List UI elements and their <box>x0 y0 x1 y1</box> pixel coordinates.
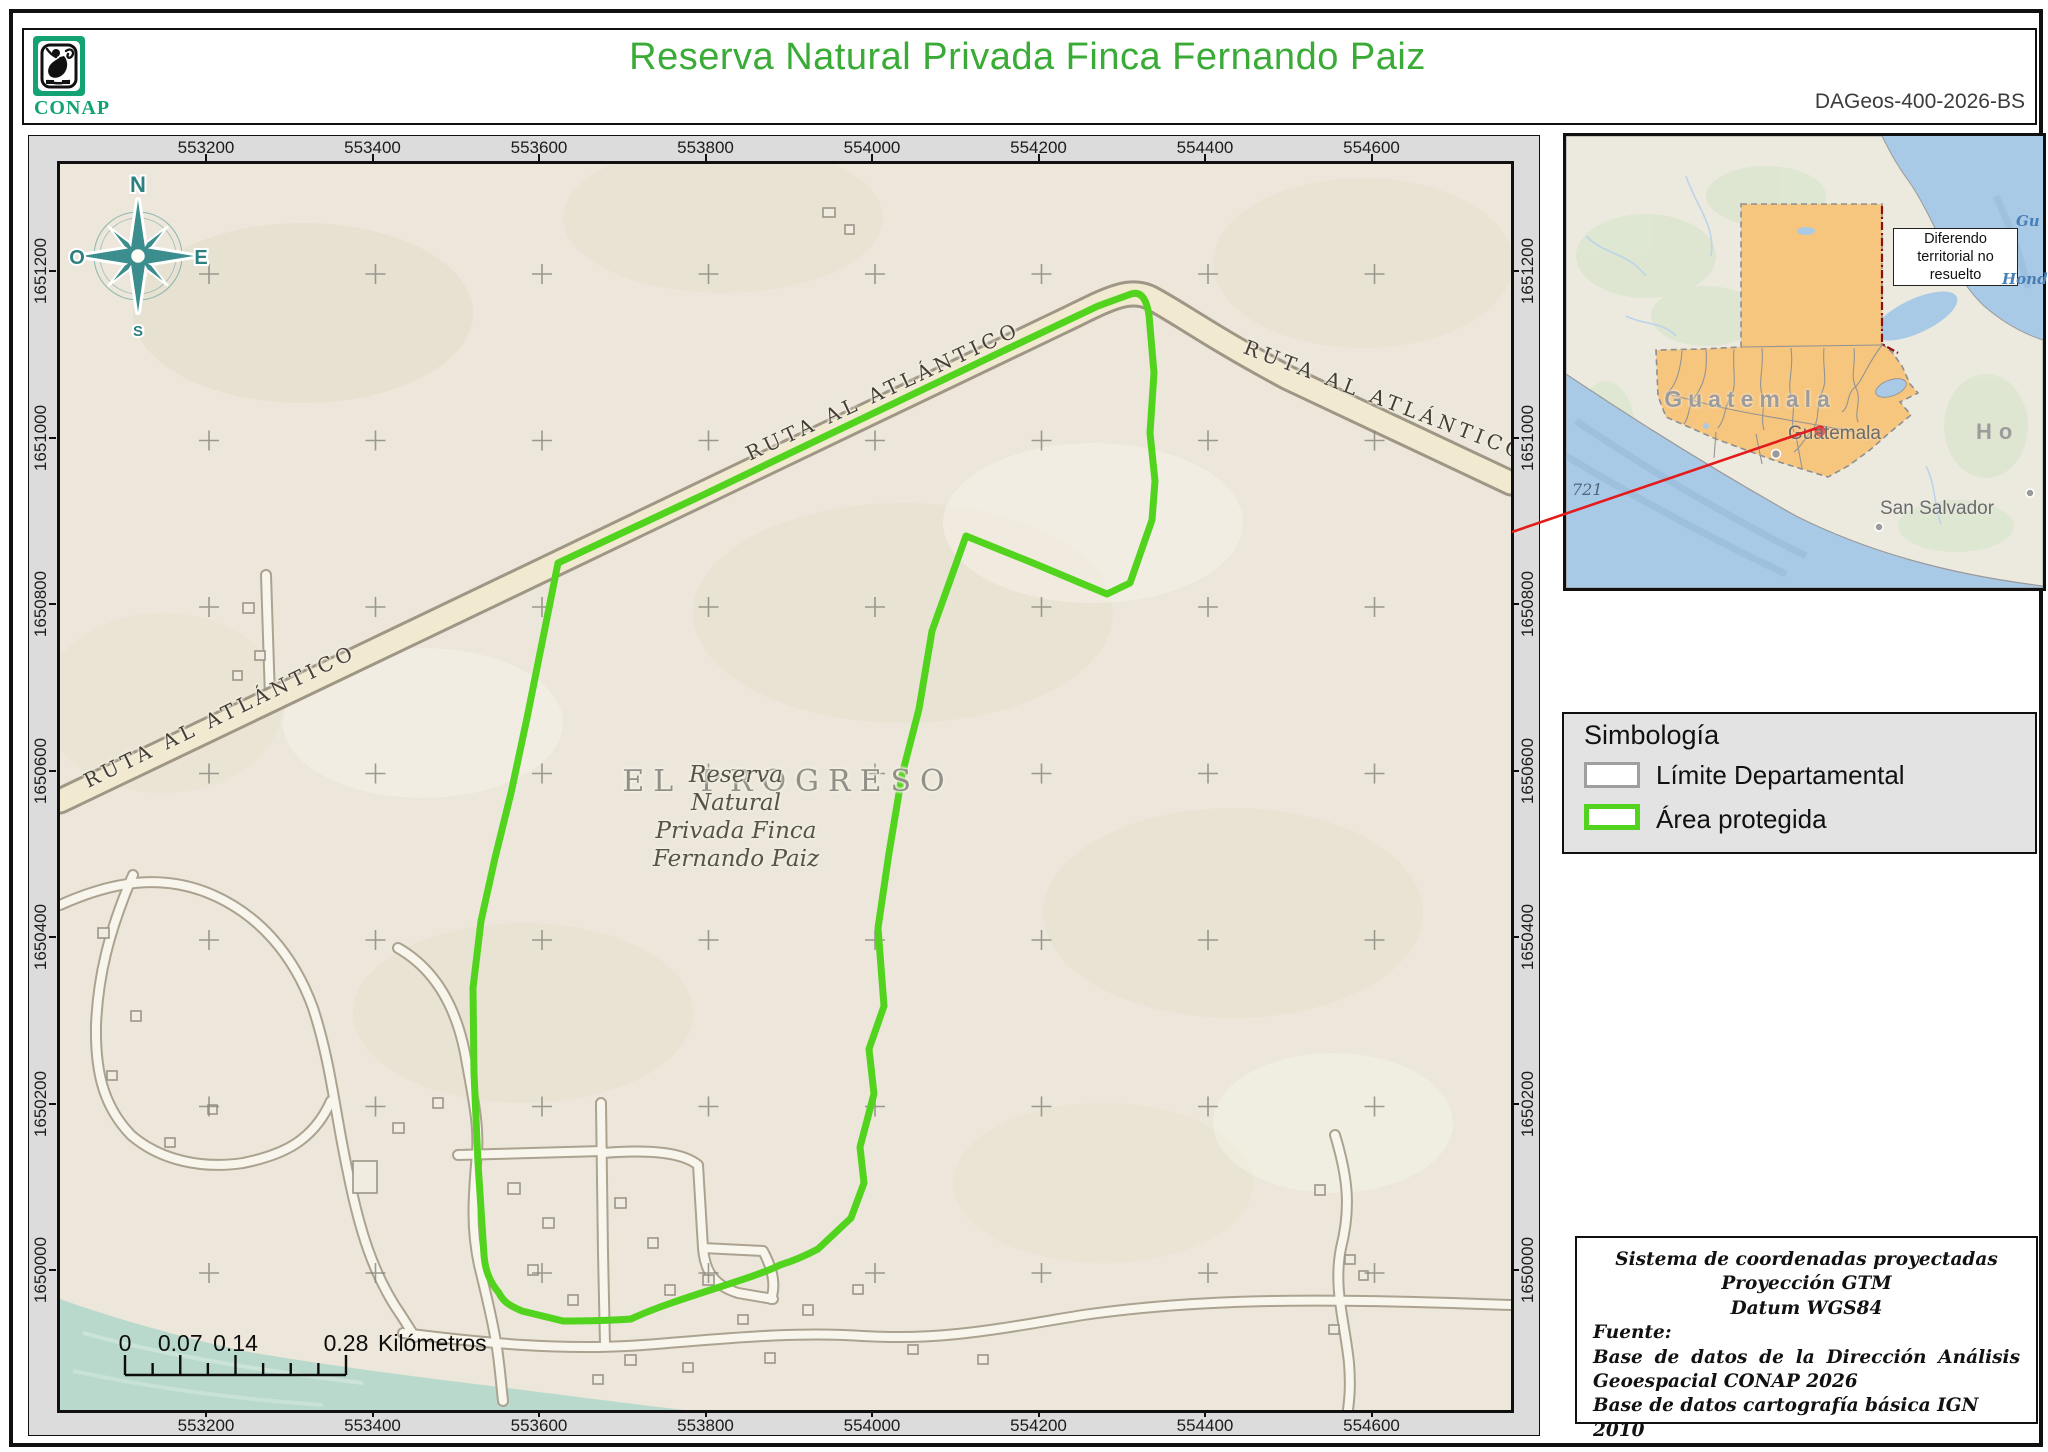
axis-label <box>49 770 56 772</box>
axis-top: 5532005534005536005538005540005542005544… <box>28 136 1538 161</box>
axis-label <box>49 270 56 272</box>
axis-label <box>49 936 56 938</box>
axis-label: 553200 <box>161 1416 251 1436</box>
scale-tick-label: 0 <box>119 1330 132 1357</box>
axis-label <box>705 154 707 161</box>
axis-label: 1651000 <box>31 393 51 483</box>
territorial-note: Diferendo territorial no resuelto <box>1893 228 2018 286</box>
city-dot <box>2026 489 2034 497</box>
axis-label <box>538 154 540 161</box>
axis-label: 1650600 <box>31 726 51 816</box>
guatemala-city-dot <box>1772 450 1781 459</box>
credits-box: Sistema de coordenadas proyectadas Proye… <box>1575 1236 2038 1424</box>
compass-w: O <box>69 247 85 269</box>
compass-e: E <box>194 247 207 269</box>
compass-rose-icon: N O E S <box>66 164 216 344</box>
country-label: Guatemala <box>1650 386 1850 413</box>
axis-label: 554400 <box>1160 1416 1250 1436</box>
axis-label <box>1038 154 1040 161</box>
credits-projection: Proyección GTM <box>1593 1272 2020 1296</box>
credits-source-1: Base de datos de la Dirección Análisis G… <box>1593 1346 2020 1395</box>
capital-city-label: Guatemala <box>1788 423 1908 445</box>
axis-label: 1650800 <box>31 559 51 649</box>
axis-label: 553800 <box>661 1416 751 1436</box>
axis-label <box>1204 154 1206 161</box>
axis-left: 1651200165100016508001650600165040016502… <box>29 135 56 1434</box>
scale-tick-label: 0.07 <box>158 1330 203 1357</box>
lake-peten <box>1797 227 1815 235</box>
conap-logo <box>33 36 85 98</box>
axis-label: 1650200 <box>1518 1059 1538 1149</box>
honduras-label: Ho <box>1976 419 2019 445</box>
credits-fuente: Fuente: <box>1593 1321 2020 1345</box>
map-canvas: N O E S EL PROGRESO Reserva Natural Priv… <box>57 161 1514 1413</box>
axis-right: 1651200165100016508001650600165040016502… <box>1512 135 1540 1434</box>
limite-swatch <box>1584 762 1640 788</box>
legend-title: Simbología <box>1584 720 1719 751</box>
compass-s: S <box>133 323 143 340</box>
axis-label: 1650800 <box>1518 559 1538 649</box>
credits-datum: Datum WGS84 <box>1593 1297 2020 1321</box>
reserve-name-label: Reserva Natural Privada Finca Fernando P… <box>622 761 850 873</box>
axis-label: 1651000 <box>1518 393 1538 483</box>
conap-wordmark: CONAP <box>26 97 118 120</box>
depth-label: 721 <box>1572 480 1603 499</box>
san-salvador-label: San Salvador <box>1880 498 2020 520</box>
san-salvador-dot <box>1875 523 1883 531</box>
axis-label: 1650400 <box>1518 892 1538 982</box>
axis-label <box>205 154 207 161</box>
axis-label <box>871 154 873 161</box>
axis-label <box>49 437 56 439</box>
axis-label: 554000 <box>827 1416 917 1436</box>
axis-label: 1650600 <box>1518 726 1538 816</box>
axis-label <box>49 1269 56 1271</box>
axis-label: 1650000 <box>1518 1225 1538 1315</box>
axis-label: 554200 <box>994 1416 1084 1436</box>
axis-label: 554600 <box>1327 1416 1417 1436</box>
scale-tick-label: 0.14 <box>213 1330 258 1357</box>
ocean-label-gu: Gu <box>2016 212 2040 230</box>
ocean-label-hond: Hond <box>2002 270 2048 288</box>
axis-label <box>49 1103 56 1105</box>
legend-item-label: Límite Departamental <box>1656 760 1905 791</box>
sheet-code: DAGeos-400-2026-BS <box>1640 90 2025 114</box>
axis-label: 1650000 <box>31 1225 51 1315</box>
axis-label <box>1371 154 1373 161</box>
axis-label <box>49 603 56 605</box>
scale-unit-label: Kilómetros <box>378 1330 487 1357</box>
axis-bottom: 5532005534005536005538005540005542005544… <box>28 1410 1538 1436</box>
legend: Simbología Límite Departamental Área pro… <box>1562 712 2037 854</box>
legend-item-label: Área protegida <box>1656 804 1827 835</box>
lake-atitlan <box>1703 423 1709 429</box>
inset-graphics <box>1566 136 2043 588</box>
axis-label: 1650400 <box>31 892 51 982</box>
area-protegida-swatch <box>1584 804 1640 830</box>
axis-label: 1651200 <box>31 226 51 316</box>
axis-label <box>372 154 374 161</box>
page-title: Reserva Natural Privada Finca Fernando P… <box>380 36 1675 79</box>
inset-map: Diferendo territorial no resuelto Guatem… <box>1563 133 2046 591</box>
axis-label: 1651200 <box>1518 226 1538 316</box>
compass-n: N <box>130 172 146 197</box>
axis-label: 553400 <box>328 1416 418 1436</box>
credits-coord-system: Sistema de coordenadas proyectadas <box>1593 1248 2020 1272</box>
axis-label: 1650200 <box>31 1059 51 1149</box>
monkey-icon <box>33 36 85 98</box>
axis-label: 553600 <box>494 1416 584 1436</box>
credits-source-2: Base de datos cartografía básica IGN 201… <box>1593 1394 2020 1443</box>
scale-tick-label: 0.28 <box>324 1330 369 1357</box>
